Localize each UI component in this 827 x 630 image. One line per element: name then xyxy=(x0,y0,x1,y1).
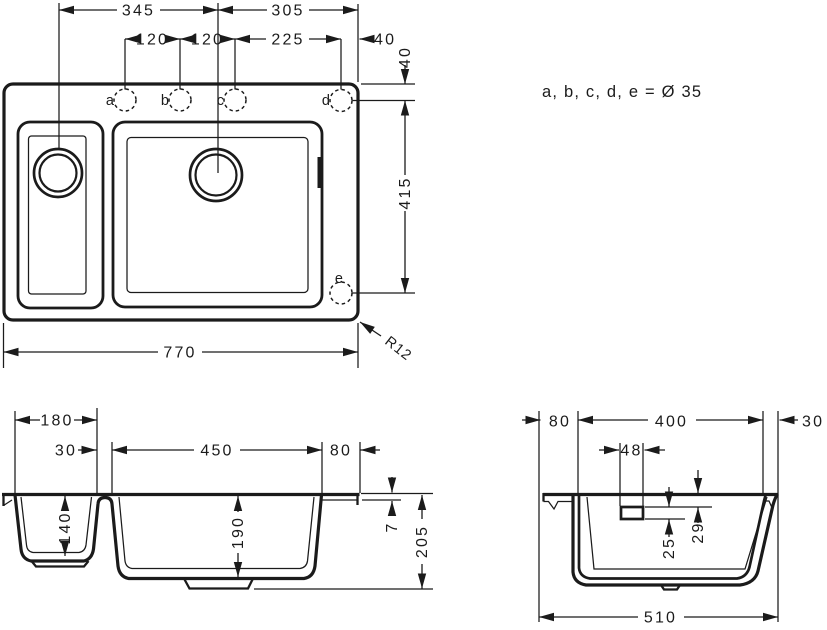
right-drain xyxy=(190,149,242,201)
dim-120b: 120 xyxy=(191,32,224,49)
dim-400: 400 xyxy=(655,414,688,431)
front-left-lip-tick xyxy=(4,500,13,506)
dim-140: 140 xyxy=(57,511,74,544)
dim-190: 190 xyxy=(230,516,247,549)
hole-c xyxy=(224,89,246,111)
hole-d xyxy=(330,90,352,112)
hole-d-label: d xyxy=(322,93,330,109)
hole-e-label: e xyxy=(335,271,343,287)
dim-30-side: 30 xyxy=(802,414,824,431)
overflow-slot-section xyxy=(621,507,643,519)
sink-dimension-drawing: a b c d e 345 305 120 120 225 40 xyxy=(0,0,827,630)
front-right-bowl-inner xyxy=(119,497,314,569)
hole-diameter-note: a, b, c, d, e = Ø 35 xyxy=(542,83,702,101)
top-view: a b c d e 345 305 120 120 225 40 xyxy=(4,3,416,369)
dim-30-front: 30 xyxy=(55,443,77,460)
left-drain-inner xyxy=(40,155,77,192)
side-left-underside xyxy=(544,502,574,510)
front-section-view: 180 30 450 80 140 190 7 205 xyxy=(2,408,433,589)
hole-b xyxy=(169,89,191,111)
radius-leader xyxy=(360,322,381,336)
left-drain xyxy=(34,149,82,197)
overflow-slot xyxy=(318,157,323,188)
dim-225: 225 xyxy=(271,32,304,49)
technical-drawing-page: a b c d e 345 305 120 120 225 40 xyxy=(0,0,827,630)
dim-80-front: 80 xyxy=(330,443,352,460)
dim-40-horizontal: 40 xyxy=(374,32,396,49)
dim-80-side: 80 xyxy=(549,414,571,431)
dim-510: 510 xyxy=(644,610,677,627)
dim-180: 180 xyxy=(40,413,73,430)
dim-48: 48 xyxy=(620,443,642,460)
dim-25: 25 xyxy=(661,537,678,559)
hole-b-label: b xyxy=(161,93,169,109)
top-view-extension-lines xyxy=(4,3,416,368)
radius-label: R12 xyxy=(382,334,415,365)
dim-120a: 120 xyxy=(136,32,169,49)
side-section-view: 80 400 30 48 25 29 510 xyxy=(522,411,824,627)
dim-7: 7 xyxy=(384,521,401,532)
side-extension-lines xyxy=(539,411,778,622)
dim-40-vertical: 40 xyxy=(397,46,414,68)
dim-450: 450 xyxy=(200,443,233,460)
hole-a xyxy=(114,89,136,111)
sink-outline xyxy=(4,84,358,320)
dim-415: 415 xyxy=(397,176,414,209)
dim-205: 205 xyxy=(414,525,431,558)
dim-29: 29 xyxy=(690,521,707,543)
dim-770: 770 xyxy=(163,345,196,362)
right-drain-inner xyxy=(196,155,237,196)
dim-345: 345 xyxy=(122,3,155,20)
dim-305: 305 xyxy=(271,3,304,20)
hole-a-label: a xyxy=(106,93,115,109)
